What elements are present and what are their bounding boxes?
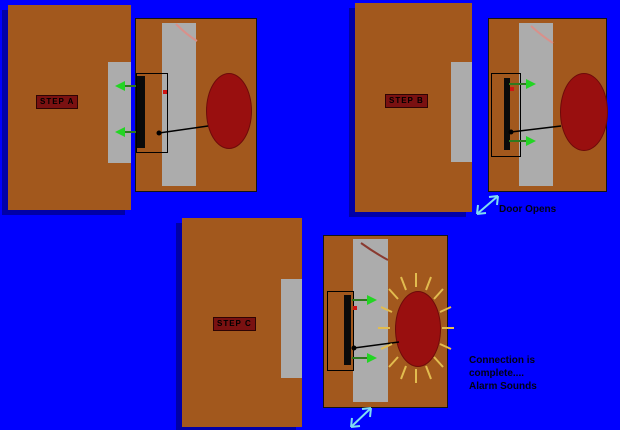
alarm-note-line-3: Alarm Sounds (469, 380, 537, 393)
door-motion-arrow-c-icon (351, 408, 371, 427)
door-a-strike-plate (108, 62, 131, 163)
frame-c (323, 235, 448, 408)
step-a-label: STEP A (36, 95, 78, 109)
step-b-label: STEP B (385, 94, 428, 108)
contact-dot-b (510, 87, 514, 91)
switch-housing-c (327, 291, 354, 371)
switch-bar-a (137, 76, 145, 148)
frame-b (488, 18, 607, 192)
alarm-bell-b (560, 73, 608, 151)
door-alarm-diagram: STEP A STEP B STEP C Door Opens (0, 0, 620, 430)
door-opens-label: Door Opens (499, 203, 556, 216)
door-c: STEP C (182, 218, 302, 427)
alarm-sounds-note: Connection is complete.... Alarm Sounds (469, 354, 537, 393)
frame-b-strip (519, 23, 553, 186)
switch-housing-a (136, 73, 168, 153)
contact-dot-a (163, 90, 167, 94)
alarm-note-line-2: complete.... (469, 367, 537, 380)
contact-dot-c (353, 306, 357, 310)
alarm-bell-a (206, 73, 252, 149)
switch-bar-c (344, 295, 351, 365)
door-b-strike-plate (451, 62, 472, 162)
door-motion-arrow-b-icon (477, 196, 498, 214)
alarm-bell-c (395, 291, 441, 367)
door-a: STEP A (8, 5, 131, 210)
frame-c-strip (353, 239, 388, 402)
frame-a (135, 18, 257, 192)
switch-housing-b (491, 73, 521, 157)
step-c-label: STEP C (213, 317, 256, 331)
door-c-strike-plate (281, 279, 302, 378)
alarm-note-line-1: Connection is (469, 354, 537, 367)
door-b: STEP B (355, 3, 472, 212)
